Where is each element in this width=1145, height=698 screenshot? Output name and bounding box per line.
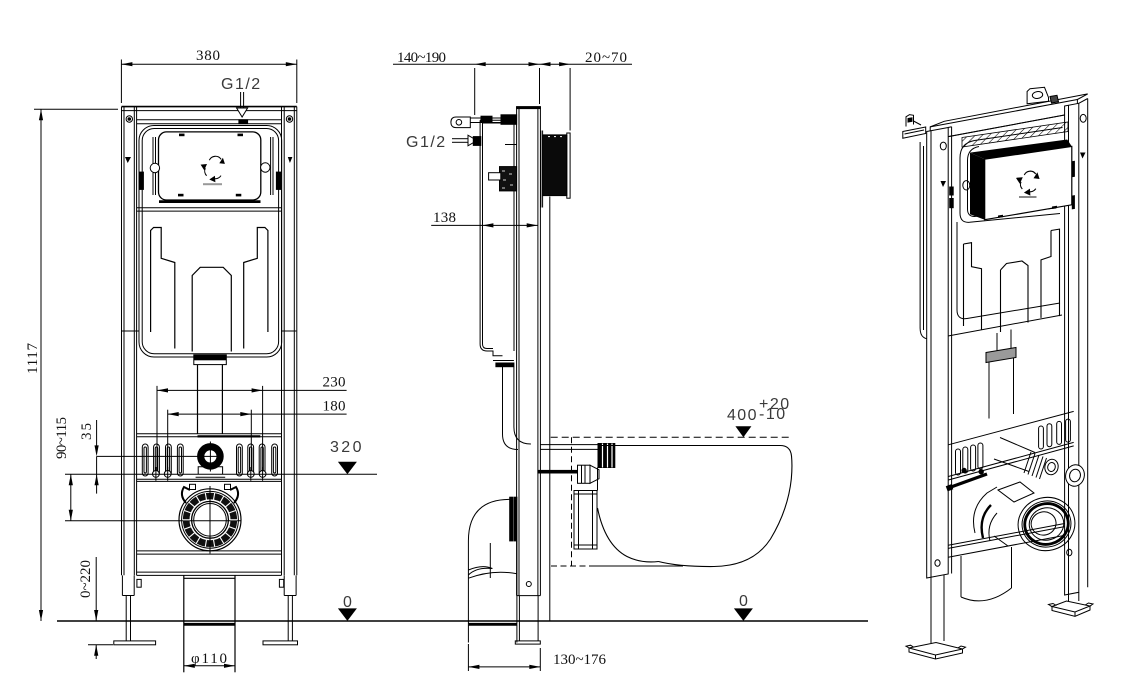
svg-text:20~70: 20~70 [585,50,627,66]
svg-text:320: 320 [330,439,363,456]
svg-text:-10: -10 [759,406,787,423]
svg-text:G1/2: G1/2 [221,76,262,93]
svg-text:0: 0 [739,593,749,610]
svg-text:138: 138 [433,210,456,226]
svg-text:G1/2: G1/2 [406,134,447,151]
svg-text:1117: 1117 [25,343,41,375]
svg-text:180: 180 [323,399,346,415]
svg-text:90~115: 90~115 [54,417,70,459]
svg-text:140~190: 140~190 [397,50,446,66]
svg-text:φ110: φ110 [191,651,227,667]
svg-text:35: 35 [79,423,95,440]
svg-text:130~176: 130~176 [553,652,607,668]
svg-text:400: 400 [727,407,758,424]
svg-text:380: 380 [196,48,220,64]
svg-text:230: 230 [323,375,346,391]
svg-text:0~220: 0~220 [78,560,94,598]
